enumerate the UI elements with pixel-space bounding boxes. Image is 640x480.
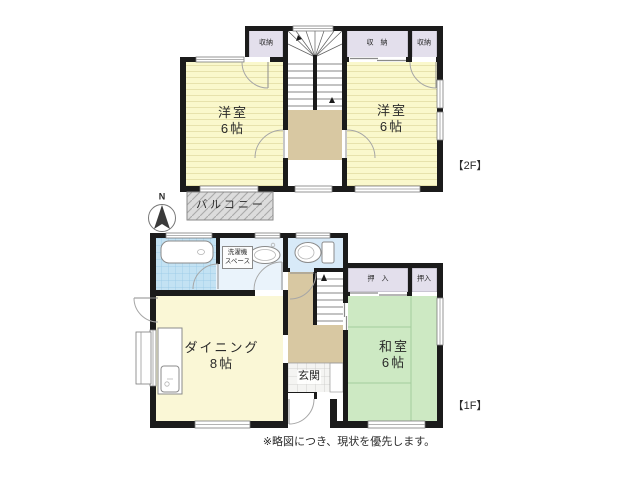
label-floor-1f: 【1F】 — [453, 400, 488, 414]
toilet — [295, 242, 334, 263]
bay-window — [136, 332, 151, 384]
label-2f-right-room: 洋室6帖 — [377, 103, 407, 136]
label-2f-left-room: 洋室6帖 — [218, 105, 248, 138]
floorplan-drawing — [0, 0, 640, 480]
label-2f-closet-wide: 収 納 — [367, 40, 388, 49]
1f-stairwell-floor — [317, 272, 343, 325]
label-oshiire-narrow: 押入 — [417, 276, 431, 285]
label-genkan: 玄関 — [297, 370, 321, 384]
label-2f-closet-narrow: 収納 — [417, 40, 431, 49]
label-oshiire-wide: 押 入 — [368, 276, 389, 285]
1f-genkan-step — [330, 363, 343, 392]
label-compass-north: N — [159, 191, 166, 202]
label-dining: ダイニング8帖 — [184, 340, 259, 373]
label-japanese-room: 和室6帖 — [379, 339, 409, 372]
floorplan-canvas: 洋室6帖 洋室6帖 収納 収 納 収納 バルコニー 【2F】 洗濯機スペース ダ… — [0, 0, 640, 480]
label-2f-closet-left: 収納 — [259, 40, 273, 49]
label-laundry-space: 洗濯機スペース — [222, 246, 253, 269]
bathtub — [161, 241, 213, 263]
label-disclaimer-note: ※略図につき、現状を優先します。 — [263, 436, 435, 450]
floor-1f-plan — [134, 233, 443, 428]
2f-hall-floor — [288, 110, 342, 160]
label-balcony: バルコニー — [196, 199, 266, 213]
compass-north-icon — [149, 205, 176, 232]
kitchen-sink-counter — [158, 328, 182, 394]
label-floor-2f: 【2F】 — [453, 160, 488, 174]
2f-hall-lower-floor — [288, 160, 342, 186]
